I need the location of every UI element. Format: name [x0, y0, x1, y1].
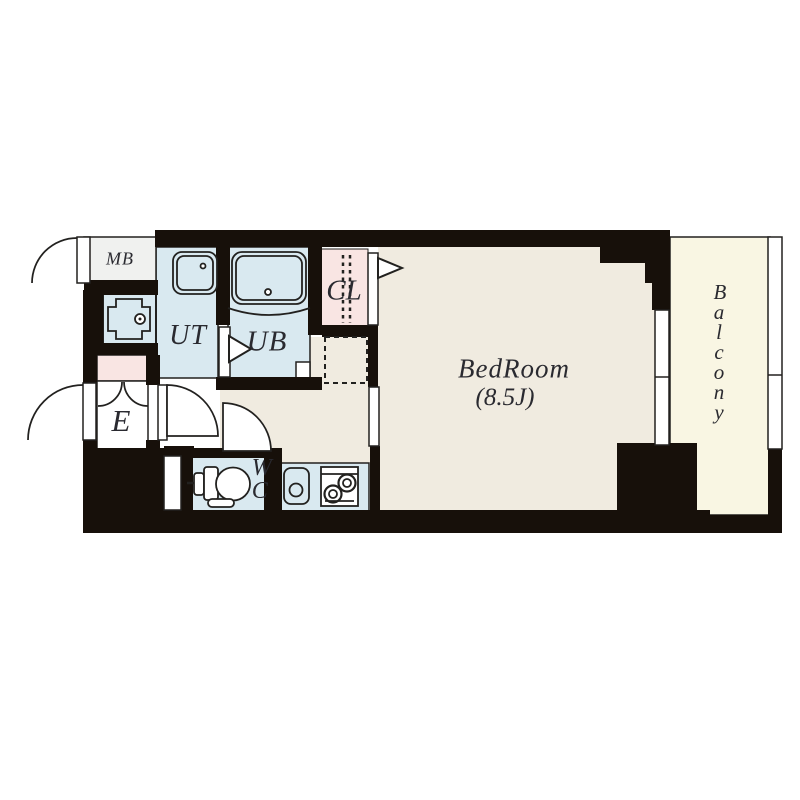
shoe-cabinet [97, 355, 148, 381]
bedroom-size-label: (8.5J) [476, 384, 535, 412]
wall-bedroom-door-top [368, 325, 378, 387]
entrance-door-leaf [83, 383, 96, 440]
laundry-pan-area [103, 293, 156, 345]
wall-entrance-right-top [146, 355, 160, 385]
balcony-label: Balcony [713, 283, 724, 423]
utility-label: UT [169, 320, 207, 352]
wall-bottom-right-block [617, 443, 697, 515]
bedroom-label: BedRoom [458, 354, 570, 385]
floorplan-drawing [0, 0, 800, 800]
unit-bath-label: UB [247, 326, 288, 359]
wall-balcony-right-column [768, 448, 782, 533]
wall-toilet-left [181, 448, 193, 513]
closet-label: CL [326, 275, 361, 308]
wall-bottom [83, 510, 710, 533]
closet-sliding-door [368, 253, 378, 325]
stove-icon [321, 467, 358, 506]
floorplan-page: MB UT UB CL E WC BedRoom (8.5J) Balcony [0, 0, 800, 800]
toilet-label: WC [252, 457, 265, 503]
wall-entrance-right-bottom [146, 440, 160, 456]
balcony-railing [768, 237, 782, 449]
meter-box-label: MB [106, 249, 134, 270]
wall-ut-ub [216, 247, 230, 325]
bath-corner-notch [296, 362, 310, 378]
wall-bottom-left-block [83, 448, 164, 513]
entrance-door-arc [28, 385, 83, 440]
wall-right-upper [652, 237, 670, 310]
pipe-shaft [164, 456, 181, 510]
sink-icon [173, 252, 217, 294]
wall-bedroom-door-bottom [370, 446, 380, 513]
meter-box-door-arc [32, 238, 77, 283]
washroom-door-leaf [158, 385, 167, 440]
bedroom-door-opening [369, 387, 379, 446]
wall-left-mid [83, 350, 97, 383]
entrance-label: E [112, 403, 131, 439]
meter-box-door-leaf [77, 237, 90, 283]
wall-top [155, 230, 670, 247]
wall-ub-cl [308, 247, 322, 335]
wall-below-bath [216, 377, 322, 390]
